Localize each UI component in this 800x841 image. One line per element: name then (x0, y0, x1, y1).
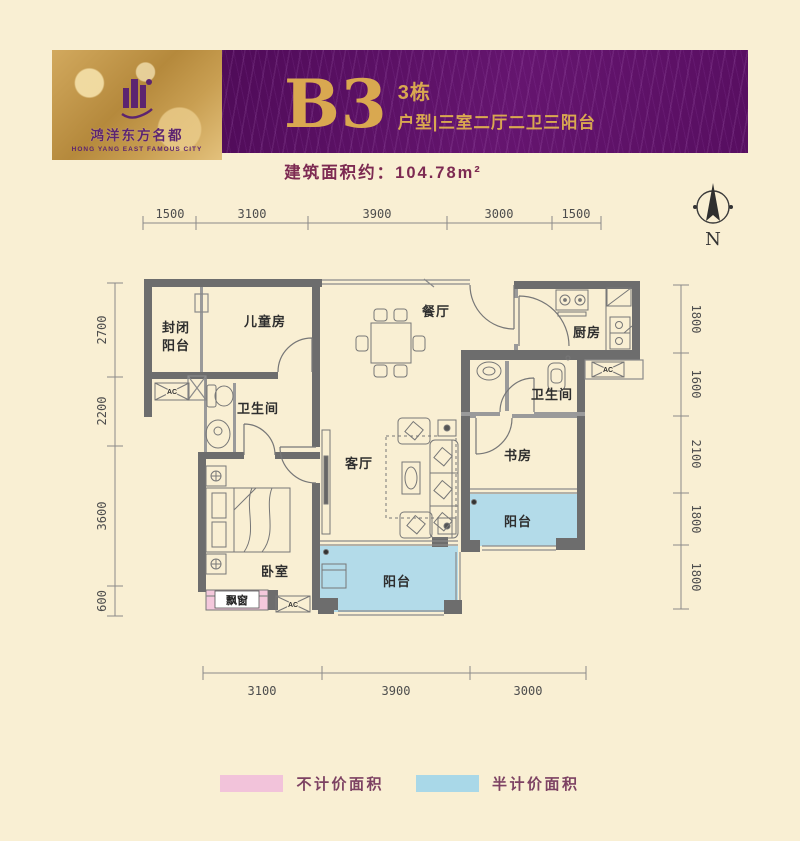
dim-right-1: 1800 (689, 305, 703, 334)
bedroom-furniture (206, 466, 290, 574)
room-label-closed-balcony-1: 封闭 (162, 320, 190, 335)
dining-table (356, 309, 425, 377)
dim-left-1: 2700 (95, 316, 109, 345)
legend-swatch-blue (416, 775, 479, 792)
living-furniture (322, 418, 458, 538)
room-label-bedroom: 卧室 (261, 564, 289, 579)
dim-left-2: 2200 (95, 397, 109, 426)
room-label-children: 儿童房 (243, 314, 286, 329)
floor-plan: N (0, 0, 800, 841)
room-label-bath2: 卫生间 (531, 387, 573, 402)
dim-bottom-2: 3900 (382, 684, 411, 698)
legend-item-half-priced: 半计价面积 (416, 773, 580, 794)
room-label-living: 客厅 (345, 456, 373, 471)
legend-item-unpriced: 不计价面积 (220, 773, 384, 794)
dim-top-4: 3000 (485, 207, 514, 221)
dim-bottom-1: 3100 (248, 684, 277, 698)
dim-top-3: 3900 (363, 207, 392, 221)
compass: N (693, 183, 733, 250)
dim-right-4: 1800 (689, 505, 703, 534)
dim-top-5: 1500 (562, 207, 591, 221)
room-label-balcony-bottom: 阳台 (383, 574, 411, 589)
bath1-fixtures (206, 385, 233, 448)
bath2-fixtures (477, 356, 570, 391)
ac-label-3: AC (288, 602, 298, 609)
legend-swatch-pink (220, 775, 283, 792)
room-label-bay-window: 飘窗 (226, 593, 248, 607)
legend-label-unpriced: 不计价面积 (296, 773, 384, 794)
room-label-bath1: 卫生间 (237, 401, 279, 416)
dim-top-2: 3100 (238, 207, 267, 221)
ac-label-1: AC (167, 389, 177, 396)
dim-right-2: 1600 (689, 370, 703, 399)
dim-right-5: 1800 (689, 563, 703, 592)
legend: 不计价面积 半计价面积 (0, 773, 800, 794)
room-label-balcony-right: 阳台 (504, 514, 532, 529)
kitchen-fixtures (556, 288, 632, 350)
dim-bottom-3: 3000 (514, 684, 543, 698)
room-label-dining: 餐厅 (421, 304, 450, 319)
dim-left-4: 600 (95, 590, 109, 612)
room-label-kitchen: 厨房 (573, 325, 601, 340)
room-label-study: 书房 (504, 448, 532, 463)
colored-areas (206, 494, 577, 612)
legend-label-half-priced: 半计价面积 (492, 773, 580, 794)
dim-top-1: 1500 (156, 207, 185, 221)
ac-label-2: AC (603, 367, 613, 374)
room-label-closed-balcony-2: 阳台 (162, 338, 190, 353)
dim-left-3: 3600 (95, 502, 109, 531)
dim-right-3: 2100 (689, 440, 703, 469)
compass-n-label: N (705, 229, 721, 250)
